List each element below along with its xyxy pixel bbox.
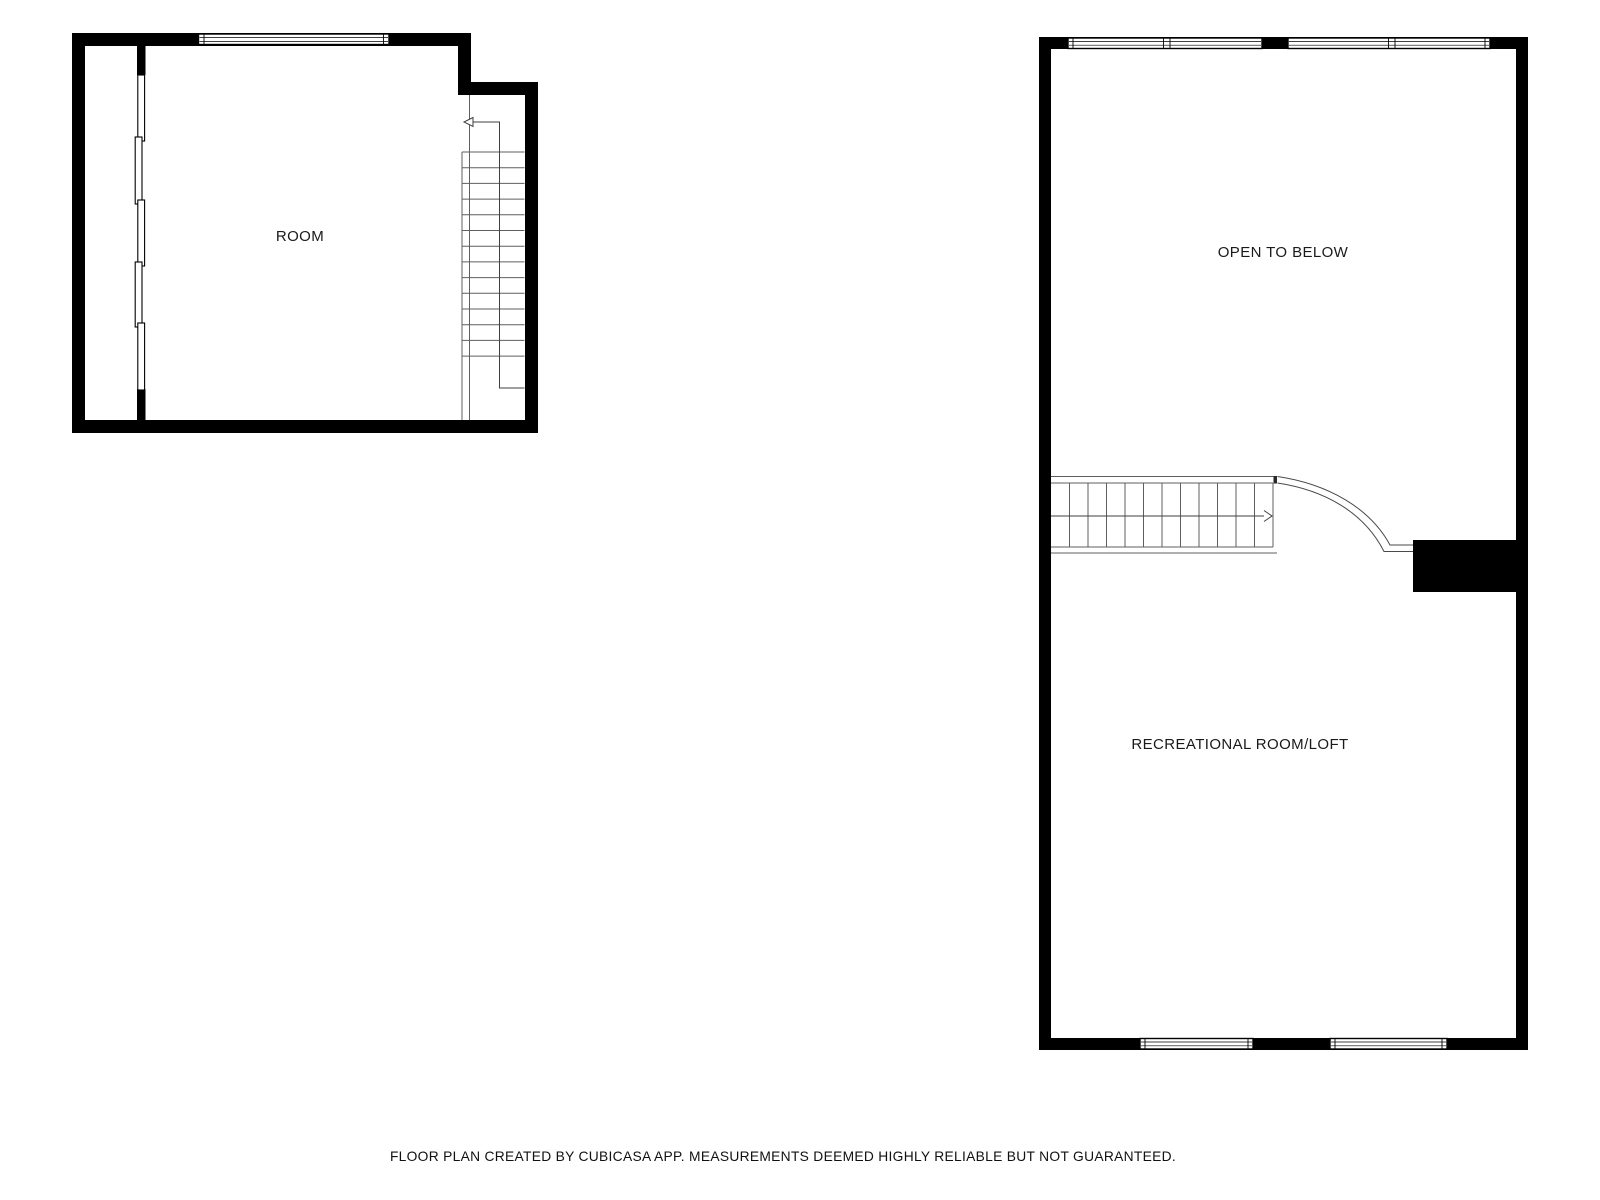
left-plan: ROOM (72, 33, 538, 433)
walk-arrow-icon (1264, 511, 1272, 522)
open-to-below-label: OPEN TO BELOW (1218, 244, 1349, 261)
stairs-icon (1051, 476, 1277, 553)
right-plan: OPEN TO BELOW RECREATIONAL ROOM/LOFT (1039, 37, 1528, 1050)
walk-line-left-plan (464, 118, 525, 389)
floor-plan-page: ROOM (0, 0, 1600, 1200)
floor-plan-canvas: ROOM (0, 0, 1600, 1200)
wall-block (1413, 540, 1516, 592)
recreational-room-label: RECREATIONAL ROOM/LOFT (1131, 736, 1348, 753)
curved-railing (1278, 477, 1414, 552)
footer-disclaimer: FLOOR PLAN CREATED BY CUBICASA APP. MEAS… (390, 1149, 1176, 1164)
wall-post-bottom (137, 389, 146, 421)
stairs-icon (462, 95, 525, 420)
top-window (199, 34, 390, 45)
newel-post (1274, 476, 1278, 484)
room-label: ROOM (276, 228, 324, 245)
wall-post-top (137, 33, 146, 75)
walk-arrow-icon (464, 118, 473, 127)
left-window-wall (135, 33, 145, 421)
